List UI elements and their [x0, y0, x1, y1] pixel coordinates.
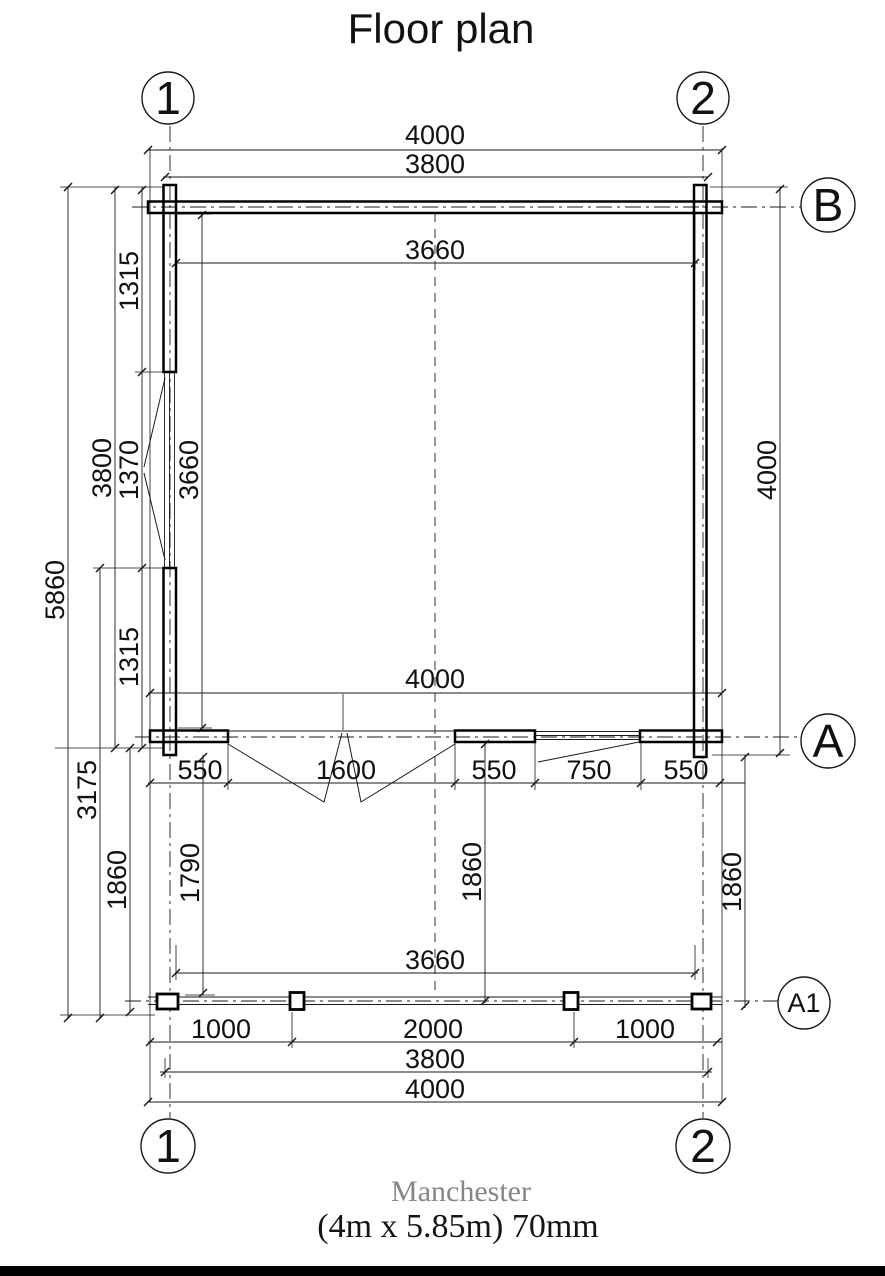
terrace-post-2: [290, 993, 304, 1010]
wall-a-segment-right: [640, 731, 722, 743]
footer-bar: [0, 1266, 885, 1276]
dim-bottom-1000b: 1000: [615, 1014, 675, 1044]
floor-plan-drawing: Floor plan: [0, 0, 885, 1276]
wall-right: [694, 185, 707, 757]
grid-markers: 1 2 1 2 B A A1: [141, 72, 855, 1173]
dim-porch-550b: 550: [471, 755, 516, 785]
dim-bottom-overall: 4000: [405, 1074, 465, 1104]
dim-top-inner: 3660: [405, 235, 465, 265]
grid-marker-1-bottom: 1: [155, 1120, 181, 1172]
page-title: Floor plan: [348, 5, 535, 52]
dim-left-room: 3800: [87, 438, 117, 498]
dim-top-overall: 4000: [405, 120, 465, 150]
wall-a-segment-mid: [455, 731, 535, 743]
grid-marker-a1: A1: [787, 988, 820, 1018]
dim-porch-center-depth: 1860: [457, 842, 487, 902]
dim-left-overall: 5860: [40, 560, 70, 620]
model-name: Manchester: [391, 1175, 531, 1208]
dimension-labels-vertical: 5860 3175 3800 1860 1315 1370 1315 3660 …: [40, 251, 782, 912]
wall-a-segment-left: [150, 731, 228, 743]
dimension-ticks-vertical: [64, 183, 784, 1022]
dim-left-porch: 3175: [72, 760, 102, 820]
dim-porch-750: 750: [566, 755, 611, 785]
model-specs: (4m x 5.85m) 70mm: [317, 1208, 598, 1245]
dim-bottom-1000a: 1000: [191, 1014, 251, 1044]
dimension-labels-horizontal: 4000 3800 3660 4000 550 1600 550 750 550…: [177, 120, 708, 1104]
terrace-post-3: [564, 993, 578, 1010]
dim-left-seg-bottom: 1315: [114, 627, 144, 687]
grid-marker-a: A: [813, 715, 844, 767]
terrace-post-1: [157, 994, 178, 1009]
dim-left-porch-depth: 1860: [102, 850, 132, 910]
terrace-post-4: [692, 994, 711, 1009]
grid-marker-2-bottom: 2: [690, 1120, 716, 1172]
grid-marker-2-top: 2: [690, 72, 716, 124]
grid-marker-b: B: [813, 179, 844, 231]
left-window-leader: [144, 378, 165, 560]
dim-porch-550a: 550: [177, 755, 222, 785]
dim-left-window: 1370: [114, 440, 144, 500]
dim-top-axes: 3800: [405, 149, 465, 179]
dim-left-seg-top: 1315: [114, 251, 144, 311]
floor-plan-page: Floor plan: [0, 0, 885, 1276]
dim-porch-550c: 550: [663, 755, 708, 785]
dim-right-room: 4000: [752, 440, 782, 500]
dim-porch-1600: 1600: [316, 755, 376, 785]
left-window: [144, 372, 175, 568]
dim-porch-right-depth: 1860: [717, 852, 747, 912]
dim-bottom-inner: 3660: [405, 945, 465, 975]
dim-porch-left-inner: 1790: [175, 843, 205, 903]
dim-bottom-2000: 2000: [403, 1014, 463, 1044]
dim-bottom-axes: 3800: [405, 1044, 465, 1074]
grid-marker-1-top: 1: [155, 72, 181, 124]
dim-mid-overall: 4000: [405, 664, 465, 694]
dim-inner-left-height: 3660: [174, 440, 204, 500]
